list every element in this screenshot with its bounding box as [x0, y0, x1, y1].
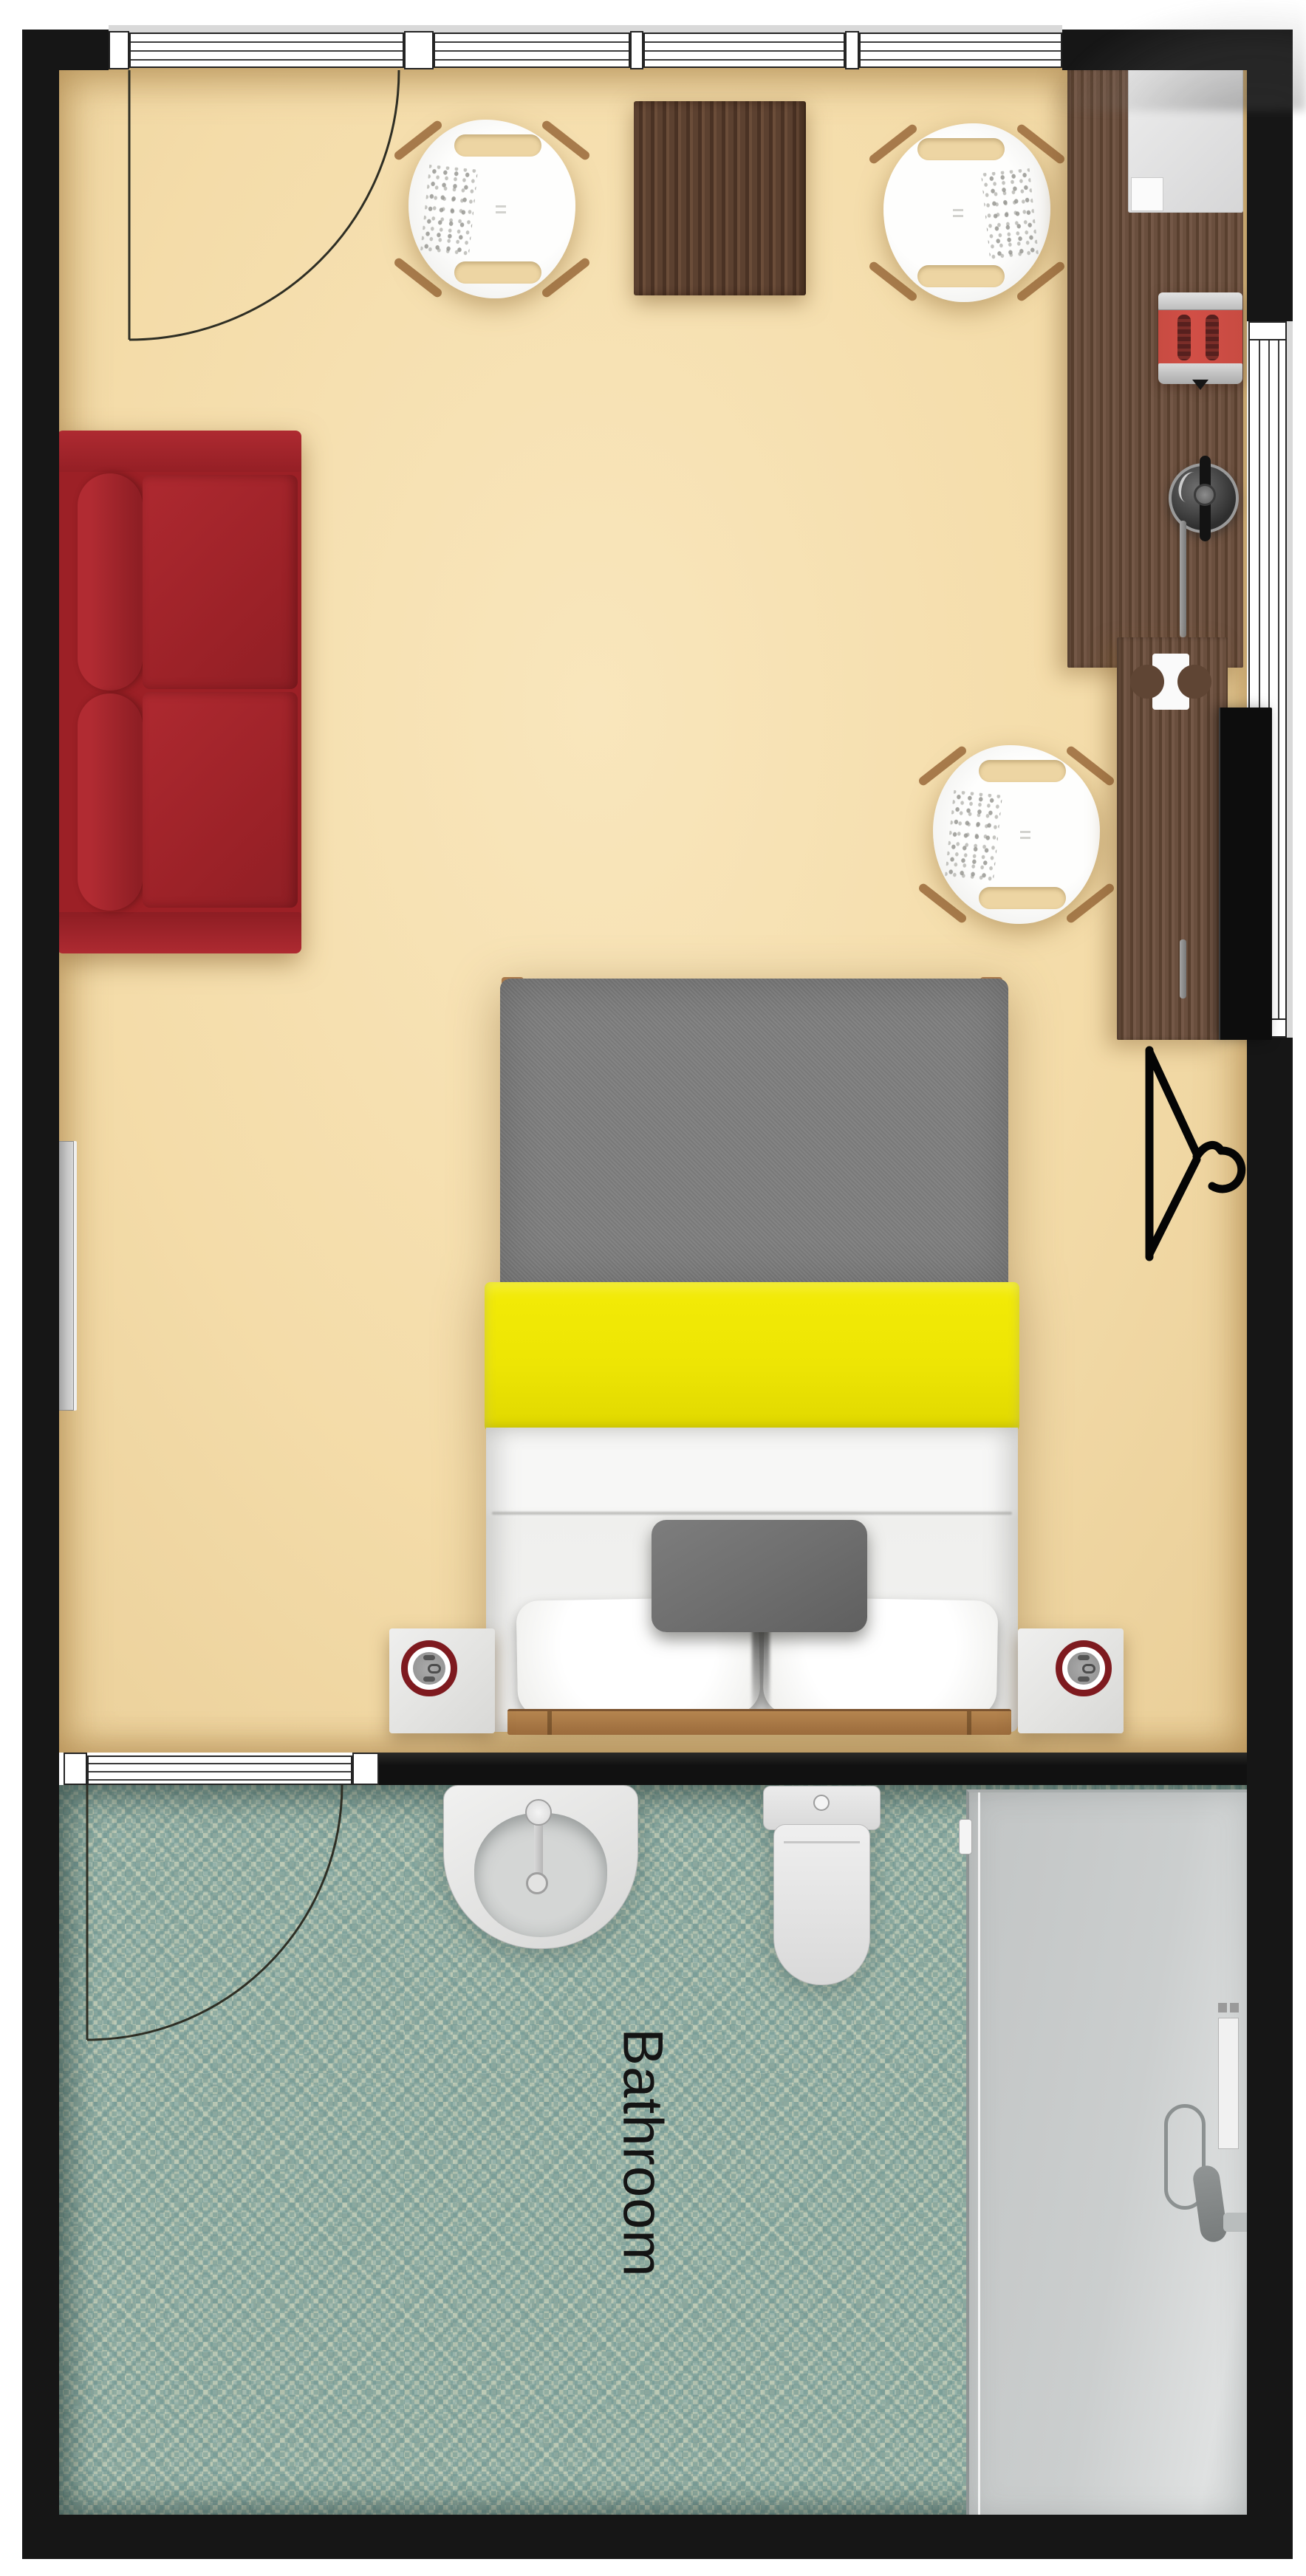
kettle-knob	[1194, 484, 1216, 506]
alarm-clock-icon	[401, 1640, 457, 1696]
sofa-seat-cushion	[143, 692, 298, 908]
sink-drain	[526, 1872, 548, 1894]
counter-handle	[1180, 521, 1186, 637]
door-jamb	[109, 31, 129, 69]
desk-paper	[1152, 654, 1189, 710]
clock-hands	[428, 1664, 441, 1674]
entry-door-panel	[129, 32, 404, 68]
sofa-armrest-top	[57, 431, 301, 472]
fridge-door-panel	[1131, 177, 1163, 211]
tv	[1219, 708, 1272, 1040]
bed-blanket	[500, 979, 1008, 1287]
armchair-left	[400, 114, 584, 304]
bathroom-sink	[443, 1785, 638, 1949]
toaster	[1158, 292, 1242, 384]
sofa-armrest-bottom	[57, 912, 301, 953]
radiator	[58, 1141, 77, 1411]
nightstand-right	[1018, 1628, 1124, 1733]
sofa-back-cushion	[78, 473, 143, 691]
chair-shell	[408, 120, 575, 298]
window-top-b	[643, 32, 845, 68]
clock-face	[1067, 1652, 1100, 1685]
wall-top-left-corner	[22, 30, 109, 70]
sofa-back-cushion	[78, 693, 143, 911]
window-outer-sill-right	[1287, 321, 1293, 1038]
clock-face	[413, 1652, 445, 1685]
shower-door-handle	[959, 1819, 972, 1854]
chair-pattern	[981, 168, 1039, 260]
floor-plan: Bathroom	[0, 0, 1306, 2576]
wall-bottom	[22, 2515, 1293, 2559]
bathroom-label: Bathroom	[611, 2028, 675, 2278]
armchair-right	[875, 117, 1059, 308]
toaster-body	[1158, 310, 1242, 365]
coffee-table	[634, 101, 806, 295]
toilet	[763, 1786, 881, 1987]
toaster-slot	[1177, 315, 1191, 360]
chair-pattern	[420, 165, 478, 256]
sofa	[57, 431, 301, 953]
door-jamb	[352, 1753, 379, 1785]
desk-handle	[1180, 939, 1186, 998]
wall-right-lower	[1247, 1038, 1293, 2559]
chair-mark	[496, 205, 506, 213]
shower-mount-left	[1218, 2003, 1227, 2012]
nightstand-left	[389, 1628, 495, 1733]
toilet-flush-button	[813, 1795, 830, 1811]
chair-shell	[933, 745, 1100, 924]
shower-mount-right	[1230, 2003, 1239, 2012]
chair-pattern	[945, 790, 1002, 882]
bathroom-door-panel	[87, 1755, 352, 1785]
shower-enclosure	[966, 1789, 1247, 2517]
wall-bathroom-divider	[379, 1753, 1247, 1785]
chair-shell	[883, 123, 1050, 302]
window-jamb	[1248, 321, 1287, 340]
toilet-bowl	[773, 1824, 870, 1985]
chair-mark	[1020, 831, 1030, 839]
window-top-c	[859, 32, 1062, 68]
clock-hands	[1082, 1664, 1095, 1674]
chair-slot	[917, 265, 1005, 287]
shower-head	[1192, 2164, 1228, 2244]
bed-sheet-fold	[492, 1512, 1012, 1515]
hanger-icon	[1138, 1041, 1248, 1263]
chair-slot	[454, 261, 541, 284]
double-bed	[485, 977, 1019, 1735]
toaster-chrome-top	[1158, 292, 1242, 312]
bed-pillow-gap	[752, 1620, 770, 1717]
sofa-seat-cushion	[143, 475, 298, 689]
chair-slot	[454, 134, 541, 157]
bed-yellow-stripe	[485, 1282, 1019, 1431]
toaster-slot	[1206, 315, 1219, 360]
window-mullion	[630, 31, 643, 69]
corner-shadow	[1049, 0, 1306, 111]
desk	[1117, 637, 1228, 1040]
faucet-knob	[525, 1799, 552, 1826]
chair-slot	[917, 138, 1005, 160]
bed-accent-pillow	[652, 1520, 867, 1632]
window-mullion	[845, 31, 859, 69]
bed-headboard	[507, 1709, 1011, 1735]
shower-column	[1218, 2018, 1239, 2149]
desk-chair	[924, 739, 1109, 930]
chair-slot	[979, 887, 1066, 909]
chair-slot	[979, 760, 1066, 782]
window-outer-sill	[109, 25, 1062, 32]
window-top-a	[434, 32, 630, 68]
window-mullion	[404, 31, 434, 69]
chair-mark	[953, 209, 963, 217]
alarm-clock-icon	[1056, 1640, 1112, 1696]
wall-left	[22, 30, 59, 2559]
toaster-lever	[1192, 380, 1208, 390]
door-jamb	[64, 1753, 87, 1785]
